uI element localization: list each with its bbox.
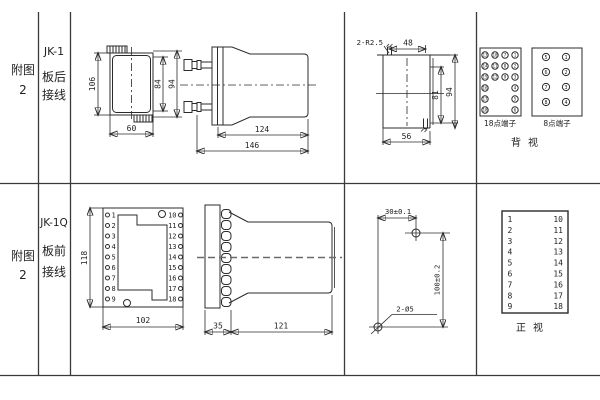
terminal-circle [106,245,110,249]
terminal-number: 8 [504,64,507,69]
terminal-block-8-label: 8点端子 [543,118,571,128]
terminal-number: 5 [514,97,517,102]
table-number-left: 2 [508,226,513,235]
terminal-circle [179,213,183,217]
terminal-number: 18 [168,296,176,304]
dim-case-width: 60 [127,124,137,133]
terminal-circle [179,245,183,249]
terminal-circle [179,276,183,280]
fixing-hole-top [159,211,166,218]
terminal-number: 5 [544,55,547,61]
terminal-number: 7 [112,275,116,283]
front-view-drawing: 123456789 101112131415161718 118 102 [80,208,183,330]
terminal-block-18-label: 18点端子 [484,118,517,128]
terminal-circle [179,224,183,228]
case-rear-view-drawing: 106 84 94 60 [88,46,182,137]
front-view-right-terminals: 101112131415161718 [168,212,182,304]
terminal-number: 15 [168,264,176,272]
terminal-number: 9 [504,75,507,80]
mounting-bolt-bottom [184,102,212,113]
terminal-bump [222,210,232,219]
dim-slot-note: 2-R2.5 [357,38,383,47]
rear-view-label: 背视 [511,136,545,149]
table-grid-lines [0,12,600,376]
terminal-number: 1 [564,55,567,61]
wiring-label-top: 板后接线 [41,68,67,104]
model-label-bottom: JK-1Q [36,217,72,229]
table-number-left: 4 [508,248,513,257]
terminal-number: 16 [168,275,176,283]
terminal-bump [222,265,232,274]
terminal-bump [222,221,232,230]
terminal-bump [222,298,232,307]
terminal-circle [106,266,110,270]
dim-slot-span-h: 48 [403,39,413,48]
terminal-bump [222,276,232,285]
terminal-circle [179,255,183,259]
dim-case-inner-height: 84 [154,79,163,89]
terminal-number: 11 [168,222,176,230]
terminal-table-numbers: 123456789101112131415161718 [508,215,564,311]
terminal-bump [222,287,232,296]
dim-body-length: 124 [255,125,270,134]
table-number-right: 11 [553,226,563,235]
terminal-circle [179,297,183,301]
dim-front-height: 118 [80,251,89,266]
terminal-bump [222,232,232,241]
terminal-number: 7 [504,53,507,58]
fixing-hole-bottom [124,300,131,307]
terminal-comb-top [107,46,127,53]
table-number-right: 18 [553,302,563,311]
table-number-right: 15 [553,270,563,279]
terminal-number: 4 [564,100,567,106]
terminal-grid-18: 131071141182151293164175186 [482,52,518,113]
terminal-block-8-view: 51627384 8点端子 [532,48,582,128]
terminal-number: 7 [544,85,547,91]
panel-cutout-drawing: 2-R2.5 48 81 94 56 [357,38,458,145]
drilling-plan-drawing: 30±0.1 100±0.2 2-Ø5 [369,207,450,334]
dim-cutout-width: 56 [402,132,412,141]
terminal-number: 1 [514,53,517,58]
terminal-table-view: 123456789101112131415161718 正视 [502,211,568,334]
dim-slot-span-v: 81 [431,90,440,100]
terminal-number: 6 [514,108,517,113]
terminal-number: 13 [482,53,488,58]
figure-label-top: 附图2 [9,61,37,100]
technical-drawing-canvas: 106 84 94 60 [0,0,600,400]
terminal-number: 16 [482,86,488,91]
table-number-left: 8 [508,291,513,300]
terminal-number: 12 [492,75,498,80]
dim-hole-span-v: 100±0.2 [433,265,442,296]
terminal-number: 13 [168,243,176,251]
terminal-circle [106,297,110,301]
terminal-number: 8 [544,100,547,106]
table-number-right: 14 [553,259,563,268]
table-number-right: 16 [553,280,563,289]
table-number-left: 9 [508,302,513,311]
terminal-number: 3 [514,75,517,80]
dim-case-height: 106 [88,77,97,92]
table-number-left: 7 [508,280,513,289]
mounting-bolt-top [184,60,212,71]
table-number-left: 1 [508,215,513,224]
table-number-right: 12 [553,237,563,246]
dim-total-length: 146 [245,141,260,150]
dim-case-outer-height: 94 [168,79,177,89]
dim-cutout-overall-height: 94 [445,87,454,97]
terminal-number: 6 [544,70,547,76]
relay-dimension-drawing-sheet: 106 84 94 60 [0,0,600,400]
terminal-circle [106,234,110,238]
figure-label-bottom: 附图2 [9,247,37,285]
terminal-number: 9 [112,296,116,304]
front-wiring-side-view-drawing: 35 121 [197,205,342,335]
terminal-number: 3 [112,233,116,241]
table-number-right: 17 [553,291,563,300]
terminal-circle [179,266,183,270]
terminal-circle [106,255,110,259]
dim-plate-depth: 35 [213,322,223,331]
terminal-number: 14 [168,254,176,262]
terminal-number: 4 [112,243,116,251]
terminal-number: 4 [514,86,517,91]
table-number-left: 6 [508,270,513,279]
terminal-number: 6 [112,264,116,272]
terminal-number: 10 [492,53,498,58]
terminal-number: 11 [492,64,498,69]
table-number-right: 10 [553,215,563,224]
front-view-left-terminals: 123456789 [106,212,116,304]
terminal-circle [106,276,110,280]
mounting-slot-top [387,44,393,55]
case-side-view-drawing: 124 146 [180,47,318,154]
front-view-label: 正视 [516,321,550,334]
terminal-number: 10 [168,212,176,220]
wiring-label-bottom: 板前接线 [41,241,67,283]
table-number-left: 3 [508,237,513,246]
dim-front-width: 102 [136,316,151,325]
table-number-left: 5 [508,259,513,268]
terminal-number: 17 [168,285,176,293]
inner-cutout-outline [118,215,167,300]
terminal-block-18-view: 131071141182151293164175186 18点端子 [480,48,521,128]
terminal-comb-bottom [134,115,153,122]
terminal-bump [222,243,232,252]
dim-hole-span-h: 30±0.1 [385,207,411,216]
terminal-number: 18 [482,108,488,113]
terminal-number: 15 [482,75,488,80]
mounting-slot-bottom [421,119,428,133]
terminal-circle [179,234,183,238]
terminal-number: 2 [514,64,517,69]
table-number-right: 13 [553,248,563,257]
terminal-number: 14 [482,64,488,69]
terminal-circle [106,224,110,228]
terminal-circle [106,287,110,291]
terminal-number: 3 [564,85,567,91]
terminal-number: 2 [564,70,567,76]
terminal-number: 1 [112,212,116,220]
terminal-number: 2 [112,222,116,230]
terminal-number: 8 [112,285,116,293]
terminal-circle [179,287,183,291]
dim-holes-note: 2-Ø5 [396,305,414,314]
terminal-grid-8: 51627384 [542,53,569,106]
terminal-number: 17 [482,97,488,102]
terminal-number: 12 [168,233,176,241]
terminal-circle [106,213,110,217]
dim-front-body-length: 121 [274,322,289,331]
terminal-number: 5 [112,254,116,262]
model-label-top: JK-1 [39,45,69,58]
